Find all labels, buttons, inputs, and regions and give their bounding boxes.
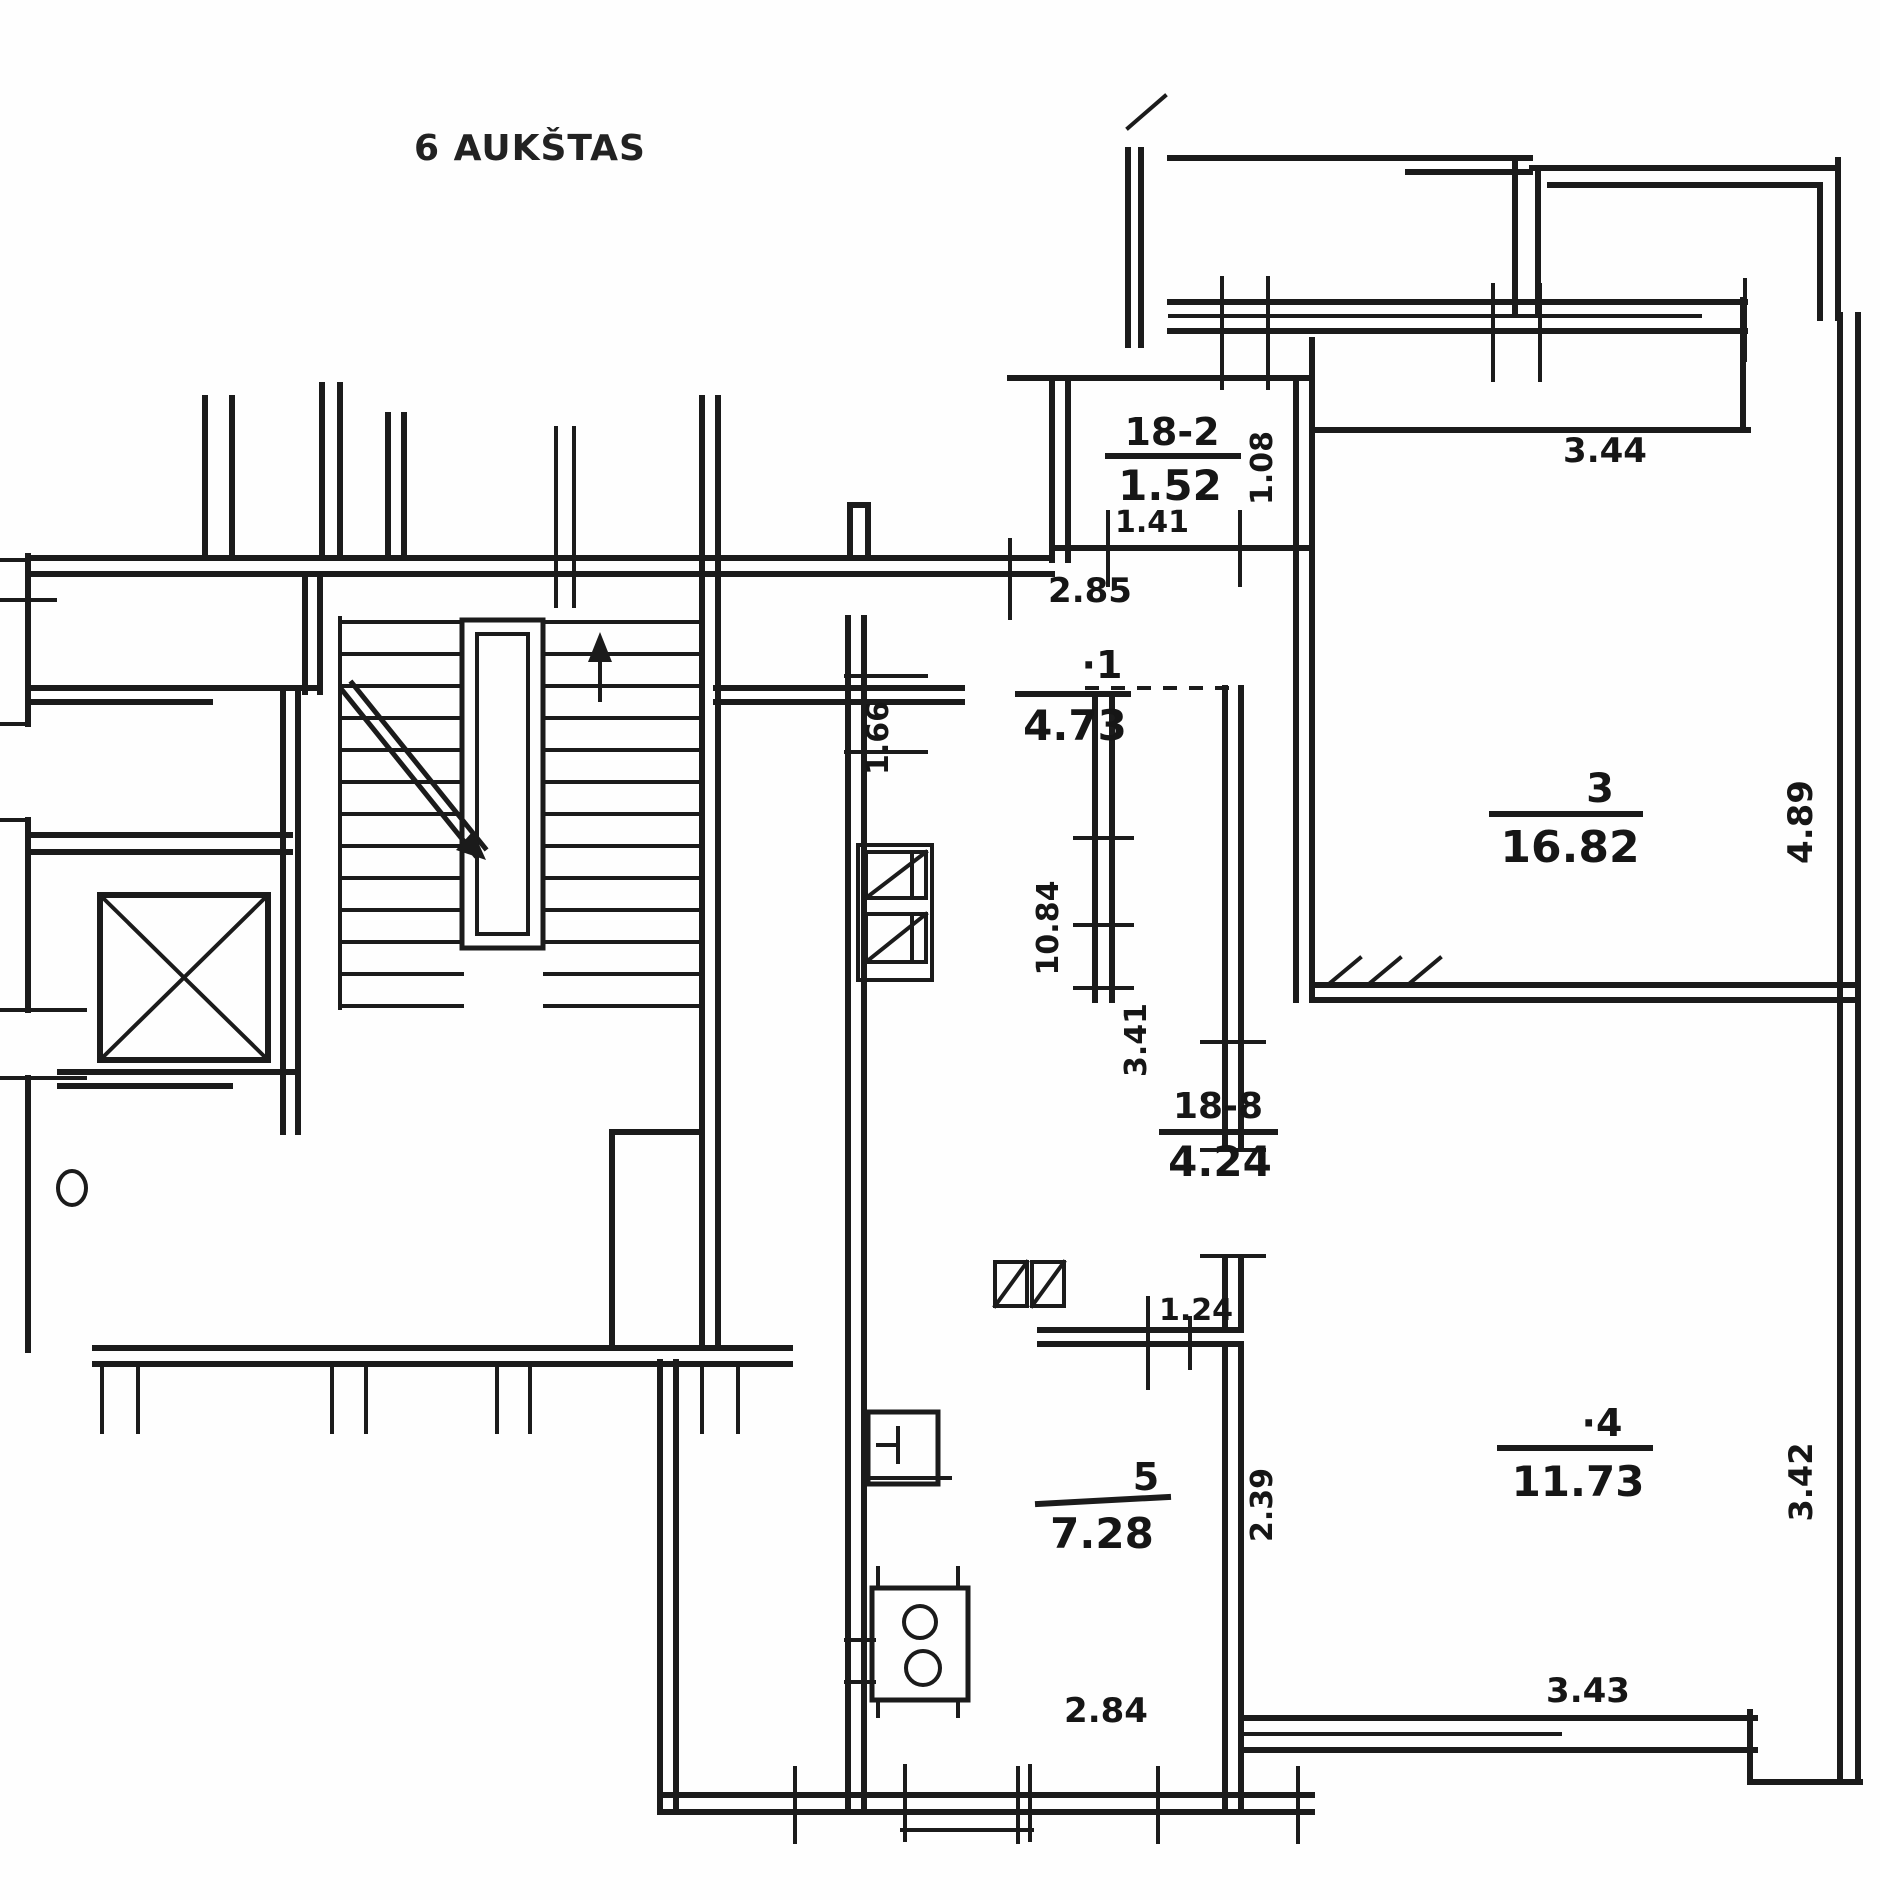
dim-living-top: 3.44 — [1563, 431, 1647, 471]
room-kitchen-area: 7.28 — [1050, 1509, 1154, 1558]
room-bedroom-number: ·4 — [1582, 1401, 1623, 1445]
dim-corridor-top-side: 10.84 — [1031, 881, 1066, 976]
room-bedroom-area: 11.73 — [1512, 1457, 1645, 1506]
dim-bedroom-bottom: 3.43 — [1546, 1671, 1630, 1711]
dim-vestibule-side: 1.08 — [1245, 431, 1280, 505]
dim-corridor-opening: 1.24 — [1159, 1293, 1233, 1328]
room-vestibule-number: 18-2 — [1124, 410, 1219, 454]
room-living-number: 3 — [1586, 766, 1614, 812]
room-hall-number: ·1 — [1082, 643, 1123, 687]
room-living-area: 16.82 — [1500, 822, 1639, 873]
dim-hall-width: 2.85 — [1048, 571, 1132, 611]
room-corridor-number: 18-8 — [1173, 1086, 1263, 1127]
dim-bedroom-right-side: 3.42 — [1782, 1443, 1820, 1522]
room-vestibule-area: 1.52 — [1118, 461, 1222, 510]
dim-bedroom-left-side: 2.39 — [1245, 1468, 1280, 1542]
stair-well — [462, 620, 543, 948]
room-hall-area: 4.73 — [1023, 701, 1127, 750]
room-kitchen-number: 5 — [1133, 1455, 1159, 1499]
dim-corridor-side: 3.41 — [1119, 1003, 1154, 1077]
page-title: 6 AUKŠTAS — [414, 127, 646, 169]
floor-plan-page: 6 AUKŠTAS 18-2 1.52 1.41 1.08 2.85 ·1 4.… — [0, 0, 1880, 1900]
dim-vestibule-width: 1.41 — [1115, 505, 1189, 540]
dim-kitchen-bottom: 2.84 — [1064, 1691, 1148, 1731]
room-corridor-area: 4.24 — [1168, 1137, 1272, 1186]
dim-hall-side: 1.66 — [861, 701, 896, 775]
floor-plan-drawing: 6 AUKŠTAS 18-2 1.52 1.41 1.08 2.85 ·1 4.… — [0, 0, 1880, 1900]
dim-living-side: 4.89 — [1781, 780, 1821, 864]
